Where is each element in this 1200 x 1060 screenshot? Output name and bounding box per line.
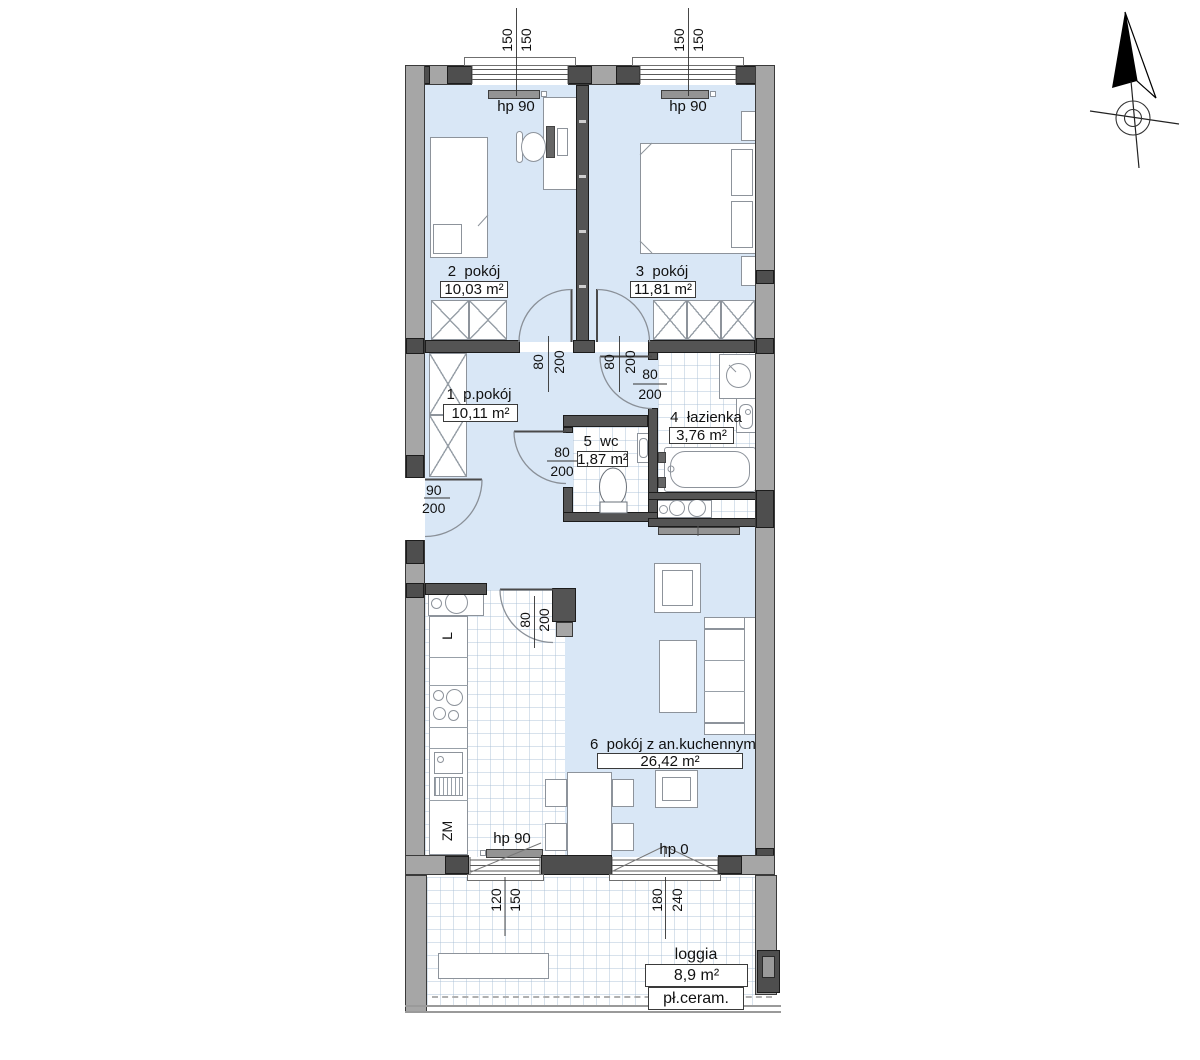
radiator-valve (541, 91, 547, 97)
sink-drainer (434, 777, 463, 796)
wall-cap (756, 338, 774, 354)
wall-bathroom-west (648, 408, 658, 527)
hob-burner (433, 707, 446, 720)
dim-door-r2-a: 80 (530, 342, 546, 382)
wall-joint (579, 120, 586, 123)
dining-chair (545, 779, 567, 807)
armchair-seat (662, 777, 691, 801)
wc-washbasin-bowl (639, 438, 648, 458)
radiator-valve (710, 91, 716, 97)
bed-pillow (731, 149, 753, 196)
wall-cap (756, 270, 774, 284)
wall-bathroom-west (648, 352, 658, 360)
room5-name: 5 wc (576, 434, 626, 451)
wall-wc-west (563, 427, 573, 433)
wall-kitchen-counter (425, 583, 487, 595)
room5-area: 1,87 m² (577, 451, 628, 467)
radiator-label: hp 90 (484, 831, 540, 848)
room1-name: 1 p.pokój (434, 387, 524, 404)
dishwasher-label: ZM (439, 811, 455, 851)
dining-table (567, 772, 612, 858)
fridge-label: L (439, 616, 455, 656)
dim-door-r2-b: 200 (551, 342, 567, 382)
wall-joint (579, 285, 586, 288)
dim-door-r3-b: 200 (622, 342, 638, 382)
hob-burner (448, 710, 459, 721)
wall-bedrooms-south (648, 340, 755, 353)
dining-chair (612, 823, 634, 851)
room3-area: 11,81 m² (630, 281, 696, 298)
bath-mixer (658, 452, 666, 463)
unit-divider (429, 800, 468, 801)
dim-door-entry-a: 90 (426, 482, 450, 498)
dim-door-wc-b: 200 (545, 463, 579, 479)
radiator-label: hp 0 (646, 842, 702, 859)
bathtub-inner (670, 451, 750, 488)
wall-west (405, 65, 425, 478)
loggia-bench (438, 953, 549, 979)
armchair-seat (662, 570, 693, 606)
wall-bedrooms-south (573, 340, 595, 353)
monitor (546, 126, 555, 158)
coffee-table (659, 640, 697, 713)
room6-area: 26,42 m² (597, 753, 743, 769)
unit-divider (429, 748, 468, 749)
wall-wc-south (563, 512, 658, 522)
unit-divider (429, 657, 468, 658)
office-chair-seat (521, 132, 546, 162)
keyboard (557, 128, 568, 156)
wall-cap (406, 540, 424, 564)
wall-cap (406, 338, 424, 354)
wall-joint (579, 230, 586, 233)
room4-area: 3,76 m² (669, 427, 734, 444)
wall-pier (541, 855, 612, 875)
wall-cap (616, 66, 640, 84)
dining-chair (612, 779, 634, 807)
dim-balcony-b: 240 (669, 880, 685, 920)
window-sill (609, 874, 721, 881)
wall-niche-south (648, 518, 757, 527)
counter-bowl (669, 500, 685, 516)
loggia-name: loggia (656, 946, 736, 964)
dining-chair (545, 823, 567, 851)
bath-mixer (658, 477, 666, 488)
window-sill (467, 874, 544, 881)
wardrobe-room3 (721, 300, 755, 340)
wardrobe-hall (429, 415, 467, 477)
wall-cap (568, 66, 592, 84)
dim-win-top-right-a: 150 (671, 20, 687, 60)
wall-joint (579, 175, 586, 178)
cushion-divider (704, 691, 745, 692)
dim-win-bottom-a: 120 (488, 880, 504, 920)
wardrobe-room3 (687, 300, 721, 340)
dim-win-top-left-b: 150 (518, 20, 534, 60)
radiator-label: hp 90 (490, 99, 542, 116)
bed-pillow (731, 201, 753, 248)
dim-door-bath-b: 200 (633, 386, 667, 402)
sofa-cushions (704, 629, 745, 723)
wall-cap (406, 455, 424, 478)
unit-divider (429, 685, 468, 686)
radiator-valve (480, 850, 486, 856)
sink-bowl (431, 598, 442, 609)
dim-door-entry-b: 200 (422, 500, 454, 516)
window-sill (632, 57, 744, 66)
dim-door-r3-a: 80 (601, 342, 617, 382)
wardrobe-room3 (653, 300, 687, 340)
counter-bowl (688, 499, 706, 517)
sink-tap (437, 756, 444, 763)
wall-bathroom-south (648, 492, 757, 500)
wall-kitchen-stub (552, 588, 576, 622)
room3-name: 3 pokój (612, 264, 712, 281)
room2-name: 2 pokój (424, 264, 524, 281)
radiator (658, 527, 740, 535)
wall-partition-r2-r3 (576, 85, 589, 342)
room1-area: 10,11 m² (443, 404, 518, 422)
dim-door-bath-a: 80 (637, 366, 663, 382)
room4-name: 4 łazienka (664, 410, 748, 427)
sofa-arm (704, 617, 745, 629)
wardrobe-room2 (469, 300, 507, 340)
dim-door-kitchen-a: 80 (517, 600, 533, 640)
wall-cap (447, 66, 472, 84)
loggia-railing (405, 1011, 781, 1013)
dim-win-top-right-b: 150 (690, 20, 706, 60)
room6-name: 6 pokój z an.kuchennym (590, 737, 750, 754)
loggia-wall-west (405, 875, 427, 1013)
dim-door-kitchen-b: 200 (536, 600, 552, 640)
radiator (486, 849, 543, 858)
wall-cap (756, 490, 774, 528)
wall-cap (445, 856, 469, 874)
bed-pillow (433, 224, 462, 254)
hob-burner (446, 689, 463, 706)
washing-machine-drum (726, 363, 751, 388)
wall-bedrooms-south (425, 340, 520, 353)
dim-win-top-left-a: 150 (499, 20, 515, 60)
loggia-pillar-core (762, 956, 775, 978)
room2-area: 10,03 m² (440, 281, 508, 298)
loggia-finish: pł.ceram. (648, 987, 744, 1010)
unit-divider (429, 727, 468, 728)
cushion-divider (704, 660, 745, 661)
wall-kitchen-stub-cap (556, 622, 573, 637)
wall-cap (718, 856, 742, 874)
radiator-label: hp 90 (662, 99, 714, 116)
wall-east (755, 65, 775, 875)
wardrobe-room2 (431, 300, 469, 340)
wall-cap (406, 583, 424, 598)
dim-balcony-a: 180 (649, 880, 665, 920)
dim-door-wc-a: 80 (549, 444, 575, 460)
sofa-arm (704, 723, 745, 735)
floor-plan: 2 pokój 10,03 m² 3 pokój 11,81 m² 1 p.po… (0, 0, 1200, 1060)
hob-burner (433, 690, 444, 701)
dim-win-bottom-b: 150 (507, 880, 523, 920)
compass-north-arrow (1090, 12, 1179, 168)
counter-bowl (659, 505, 668, 514)
loggia-area: 8,9 m² (645, 964, 748, 987)
wall-wc-north (563, 415, 648, 427)
